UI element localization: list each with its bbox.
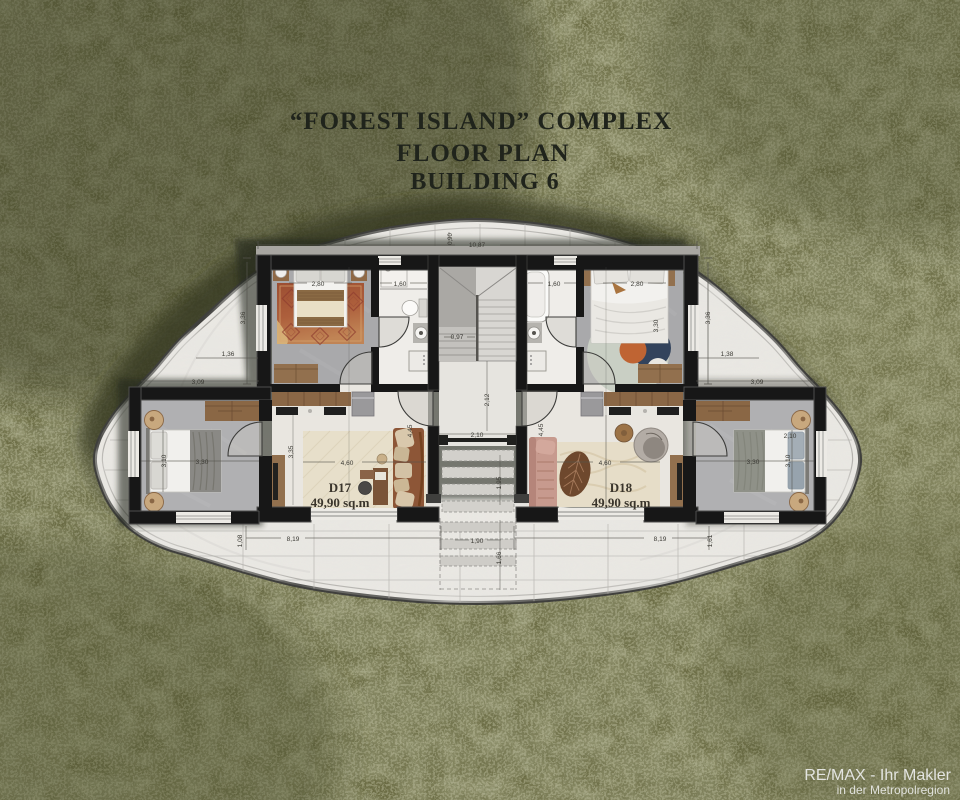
svg-text:1,08: 1,08 (237, 534, 244, 547)
svg-text:1,60: 1,60 (548, 281, 561, 288)
svg-text:3,09: 3,09 (751, 379, 764, 386)
svg-text:D18: D18 (610, 480, 633, 495)
svg-text:FLOOR PLAN: FLOOR PLAN (396, 140, 569, 167)
svg-text:8,19: 8,19 (654, 536, 667, 543)
svg-text:2,80: 2,80 (312, 281, 325, 288)
svg-text:3,10: 3,10 (785, 454, 792, 467)
svg-text:3,30: 3,30 (196, 459, 209, 466)
svg-text:10,87: 10,87 (469, 242, 486, 249)
svg-text:1,38: 1,38 (721, 351, 734, 358)
svg-text:3,35: 3,35 (288, 445, 295, 458)
svg-text:4,45: 4,45 (407, 424, 414, 437)
svg-text:4,60: 4,60 (341, 460, 354, 467)
svg-text:2,10: 2,10 (471, 432, 484, 439)
svg-text:2,80: 2,80 (631, 281, 644, 288)
svg-text:RE/MAX - Ihr Makler: RE/MAX - Ihr Makler (804, 767, 951, 784)
svg-text:49,90 sq.m: 49,90 sq.m (592, 495, 651, 510)
svg-text:1,95: 1,95 (496, 476, 503, 489)
svg-text:3,30: 3,30 (653, 319, 660, 332)
svg-text:2,10: 2,10 (784, 433, 797, 440)
svg-text:1,36: 1,36 (222, 351, 235, 358)
svg-text:3,36: 3,36 (240, 311, 247, 324)
svg-text:0,90: 0,90 (448, 233, 454, 245)
svg-text:4,45: 4,45 (538, 423, 545, 436)
svg-text:1,66: 1,66 (496, 551, 503, 564)
svg-text:1,61: 1,61 (707, 534, 714, 547)
svg-text:1,90: 1,90 (471, 538, 484, 545)
svg-text:0,97: 0,97 (451, 334, 464, 341)
svg-text:3,30: 3,30 (747, 459, 760, 466)
svg-text:3,10: 3,10 (161, 454, 168, 467)
svg-text:“FOREST ISLAND” COMPLEX: “FOREST ISLAND” COMPLEX (290, 108, 672, 135)
svg-text:BUILDING 6: BUILDING 6 (410, 169, 559, 195)
svg-text:D17: D17 (329, 480, 352, 495)
svg-text:8,19: 8,19 (287, 536, 300, 543)
svg-text:3,09: 3,09 (192, 379, 205, 386)
svg-text:4,60: 4,60 (599, 460, 612, 467)
svg-text:2,12: 2,12 (484, 393, 491, 406)
svg-text:in der Metropolregion: in der Metropolregion (837, 783, 950, 797)
svg-text:1,60: 1,60 (394, 281, 407, 288)
svg-text:49,90 sq.m: 49,90 sq.m (311, 495, 370, 510)
svg-text:3,36: 3,36 (705, 311, 712, 324)
